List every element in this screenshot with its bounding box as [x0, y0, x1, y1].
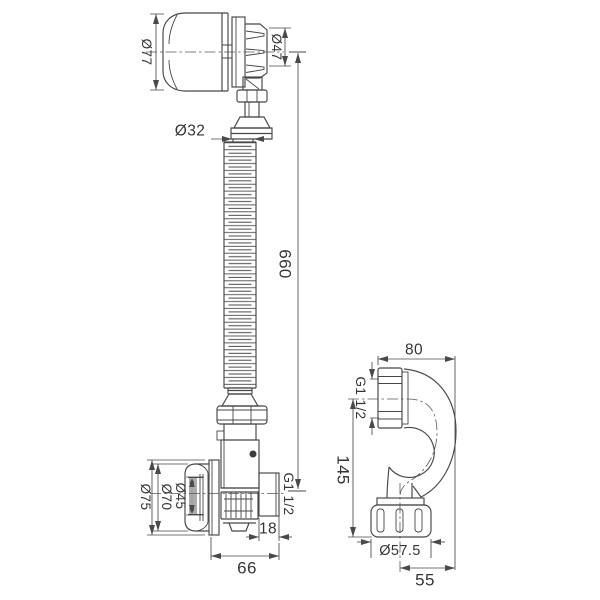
drawing-linework [0, 0, 600, 600]
dim-label-outlet-length: 18 [259, 521, 277, 537]
dim-label-body-width: 66 [237, 560, 257, 577]
dim-label-cap-diameter: Ø70 [159, 484, 173, 511]
dim-label-trap-outlet-offset: 55 [415, 572, 435, 589]
dim-label-plate-diameter: Ø75 [138, 484, 152, 511]
dim-label-trap-nut-diameter: Ø57.5 [379, 544, 421, 559]
dim-label-flange-diameter: Ø47 [269, 34, 283, 61]
dim-label-trap-width: 80 [405, 342, 423, 358]
dim-label-inner-diameter: Ø45 [173, 483, 187, 510]
dim-label-outlet-thread: G1 1/2 [281, 473, 295, 516]
dimension-lines [147, 14, 455, 570]
drain-head-view [146, 13, 306, 142]
dim-label-trap-height: 145 [335, 455, 352, 485]
technical-drawing-canvas: Ø77 Ø47 Ø32 660 Ø75 Ø70 Ø45 G1 1/2 18 66… [0, 0, 600, 600]
dim-label-trap-inlet-thread: G1 1/2 [353, 377, 367, 420]
dim-label-knob-diameter: Ø77 [139, 39, 153, 66]
flexible-hose [224, 142, 256, 394]
dim-label-pipe-length: 660 [277, 249, 294, 279]
dim-label-pipe-diameter: Ø32 [175, 123, 206, 139]
